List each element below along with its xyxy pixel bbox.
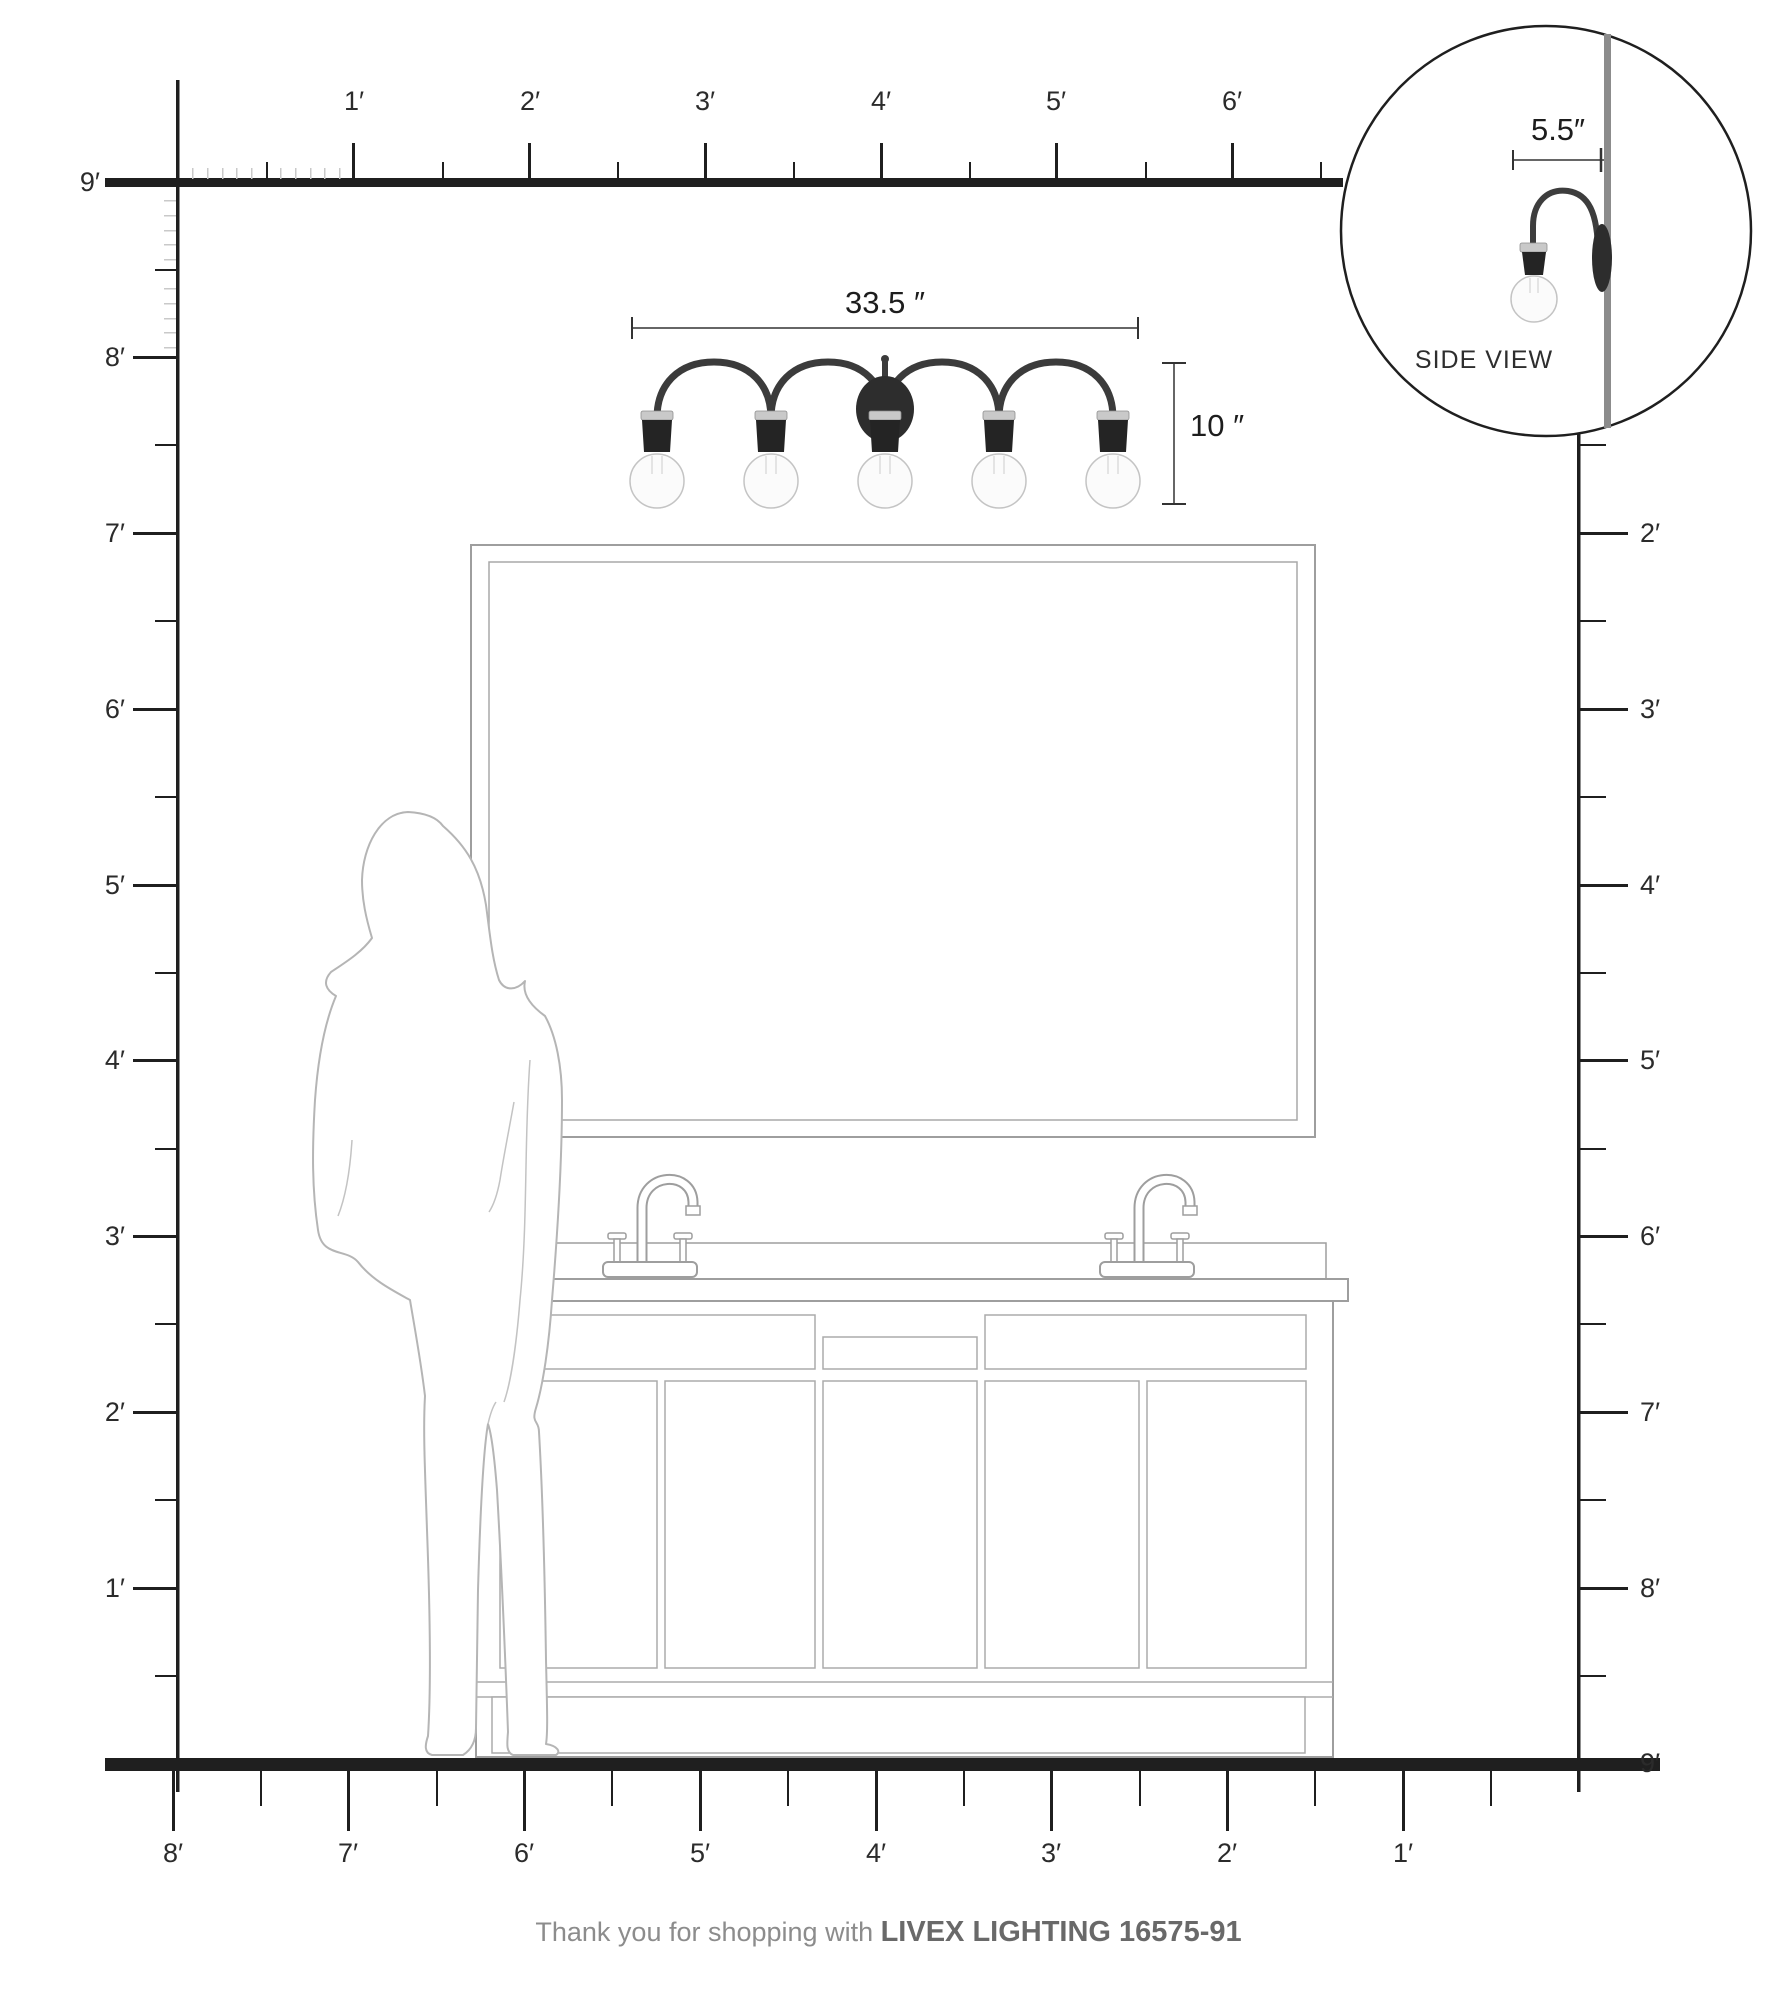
bottom-ruler-label: 5′ bbox=[678, 1840, 722, 1867]
width-dimension bbox=[632, 317, 1138, 339]
bottom-ruler-label: 4′ bbox=[854, 1840, 898, 1867]
left-ruler-label: 5′ bbox=[55, 872, 125, 899]
sconce-bulb bbox=[1511, 276, 1557, 322]
left-ruler bbox=[133, 80, 180, 1792]
sconce-backplate bbox=[1592, 224, 1612, 292]
bulb-unit bbox=[972, 411, 1026, 508]
sconce-socket bbox=[1522, 252, 1546, 275]
left-ruler-label: 1′ bbox=[55, 1575, 125, 1602]
left-ruler-label: 8′ bbox=[55, 344, 125, 371]
left-inch-ticks bbox=[164, 200, 176, 349]
right-ruler-label: 6′ bbox=[1640, 1223, 1710, 1250]
top-ruler-label: 3′ bbox=[683, 88, 727, 115]
bottom-ruler bbox=[105, 1758, 1660, 1831]
left-ruler-label: 6′ bbox=[55, 696, 125, 723]
right-ruler-label: 5′ bbox=[1640, 1047, 1710, 1074]
right-ruler-label: 4′ bbox=[1640, 872, 1710, 899]
right-ruler-label: 9′ bbox=[1640, 1750, 1710, 1777]
left-ruler-label: 4′ bbox=[55, 1047, 125, 1074]
floor-bar bbox=[105, 1758, 1660, 1771]
top-ruler-label: 1′ bbox=[332, 88, 376, 115]
footer-brand-model: LIVEX LIGHTING 16575-91 bbox=[881, 1916, 1242, 1948]
height-dimension bbox=[1162, 363, 1186, 504]
faucet-right bbox=[1100, 1179, 1197, 1277]
footer-thanks-text: Thank you for shopping with bbox=[535, 1917, 880, 1947]
top-ruler-label: 6′ bbox=[1210, 88, 1254, 115]
top-ruler bbox=[105, 143, 1343, 187]
spout-nozzle bbox=[1183, 1206, 1197, 1215]
fixture-depth-dimension-label: 5.5″ bbox=[1503, 114, 1613, 145]
left-ruler-label: 3′ bbox=[55, 1223, 125, 1250]
bottom-ruler-label: 2′ bbox=[1205, 1840, 1249, 1867]
top-ruler-label: 5′ bbox=[1034, 88, 1078, 115]
bottom-ruler-label: 6′ bbox=[502, 1840, 546, 1867]
bulb-unit bbox=[744, 411, 798, 508]
bottom-ruler-label: 1′ bbox=[1381, 1840, 1425, 1867]
bulbs bbox=[630, 411, 1140, 508]
left-ruler-label: 9′ bbox=[30, 169, 100, 196]
side-view-caption: SIDE VIEW bbox=[1384, 346, 1584, 375]
vanity-cabinet bbox=[462, 1243, 1348, 1757]
bottom-ruler-label: 8′ bbox=[151, 1840, 195, 1867]
fixture-width-dimension-label: 33.5 ″ bbox=[785, 287, 985, 318]
right-ruler-label: 8′ bbox=[1640, 1575, 1710, 1602]
faucet-left bbox=[603, 1179, 700, 1277]
left-ruler-label: 2′ bbox=[55, 1399, 125, 1426]
countertop bbox=[462, 1279, 1348, 1301]
right-ruler-label: 2′ bbox=[1640, 520, 1710, 547]
mirror bbox=[471, 545, 1315, 1137]
bottom-ruler-label: 3′ bbox=[1029, 1840, 1073, 1867]
right-ruler bbox=[1577, 433, 1628, 1792]
bottom-ruler-label: 7′ bbox=[326, 1840, 370, 1867]
right-ruler-label: 7′ bbox=[1640, 1399, 1710, 1426]
vanity-light-fixture bbox=[630, 317, 1186, 508]
right-ruler-label: 3′ bbox=[1640, 696, 1710, 723]
right-wall-line bbox=[1577, 433, 1581, 1792]
ceiling-bar bbox=[105, 178, 1343, 187]
bulb-unit bbox=[1086, 411, 1140, 508]
fixture-height-dimension-label: 10 ″ bbox=[1190, 410, 1310, 441]
spout-nozzle bbox=[686, 1206, 700, 1215]
top-ruler-label: 2′ bbox=[508, 88, 552, 115]
left-ruler-label: 7′ bbox=[55, 520, 125, 547]
dimension-diagram-page: 1′ 2′ 3′ 4′ 5′ 6′ 9′ 8′ 7′ 6′ 5′ 4′ 3′ 2… bbox=[0, 0, 1777, 2000]
bulb-unit bbox=[630, 411, 684, 508]
top-ruler-label: 4′ bbox=[859, 88, 903, 115]
left-wall-line bbox=[176, 80, 180, 1792]
footer-text: Thank you for shopping with LIVEX LIGHTI… bbox=[0, 1916, 1777, 1949]
